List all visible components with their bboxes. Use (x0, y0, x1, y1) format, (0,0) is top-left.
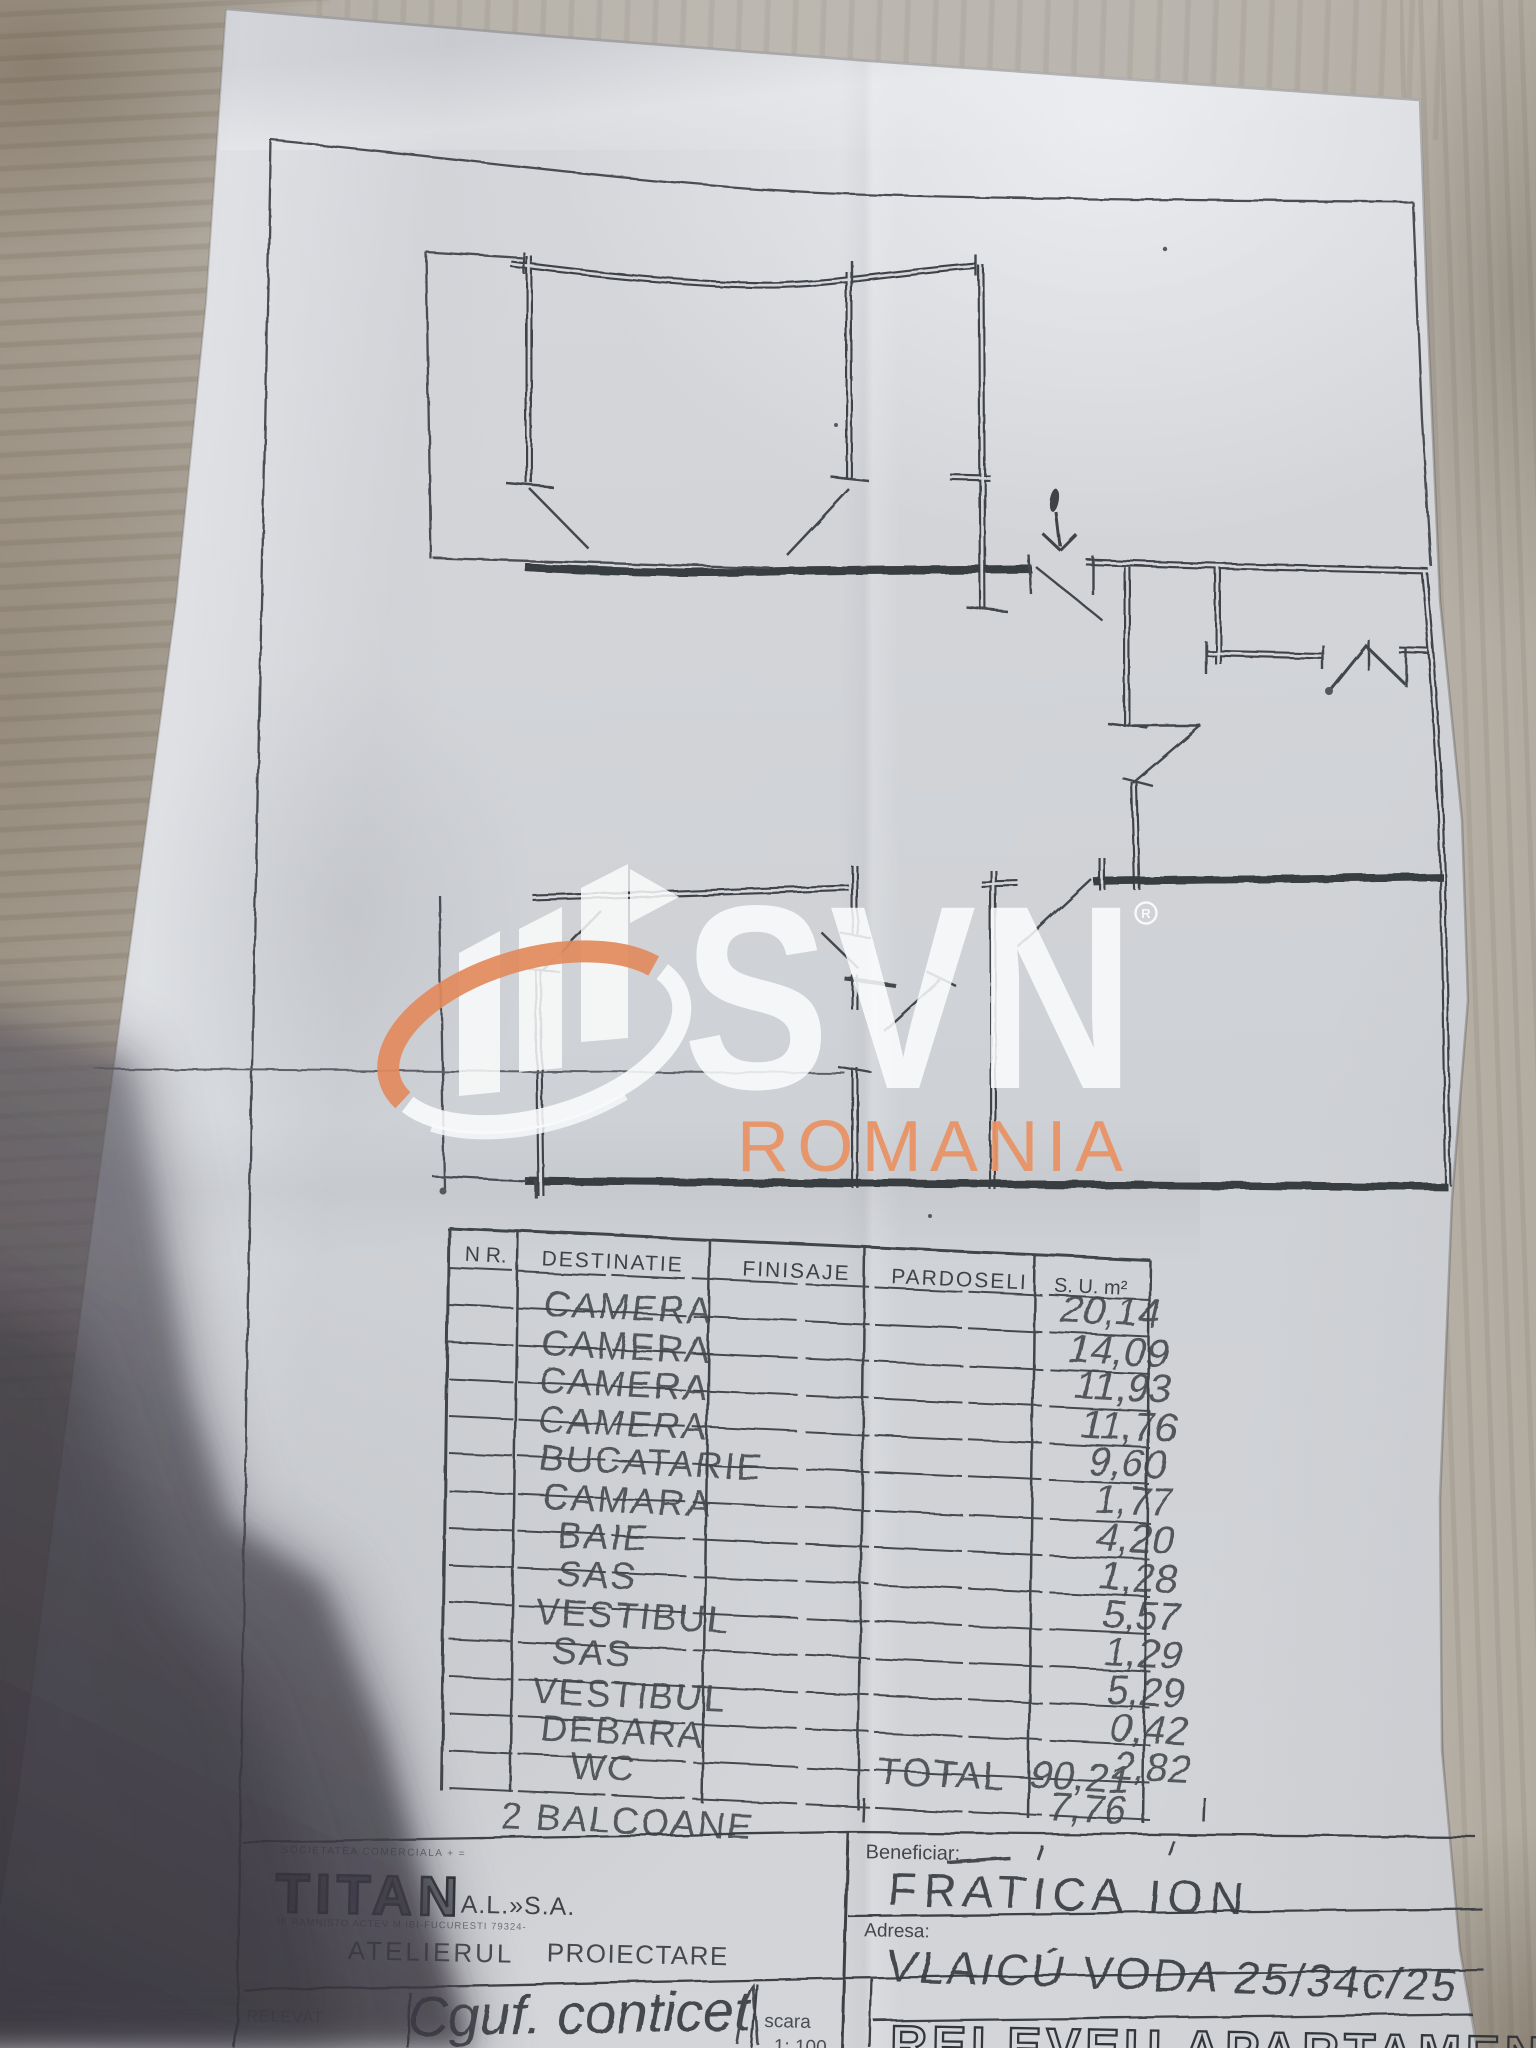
svg-text:SVN: SVN (683, 851, 1135, 1144)
svg-text:R: R (1141, 906, 1151, 921)
